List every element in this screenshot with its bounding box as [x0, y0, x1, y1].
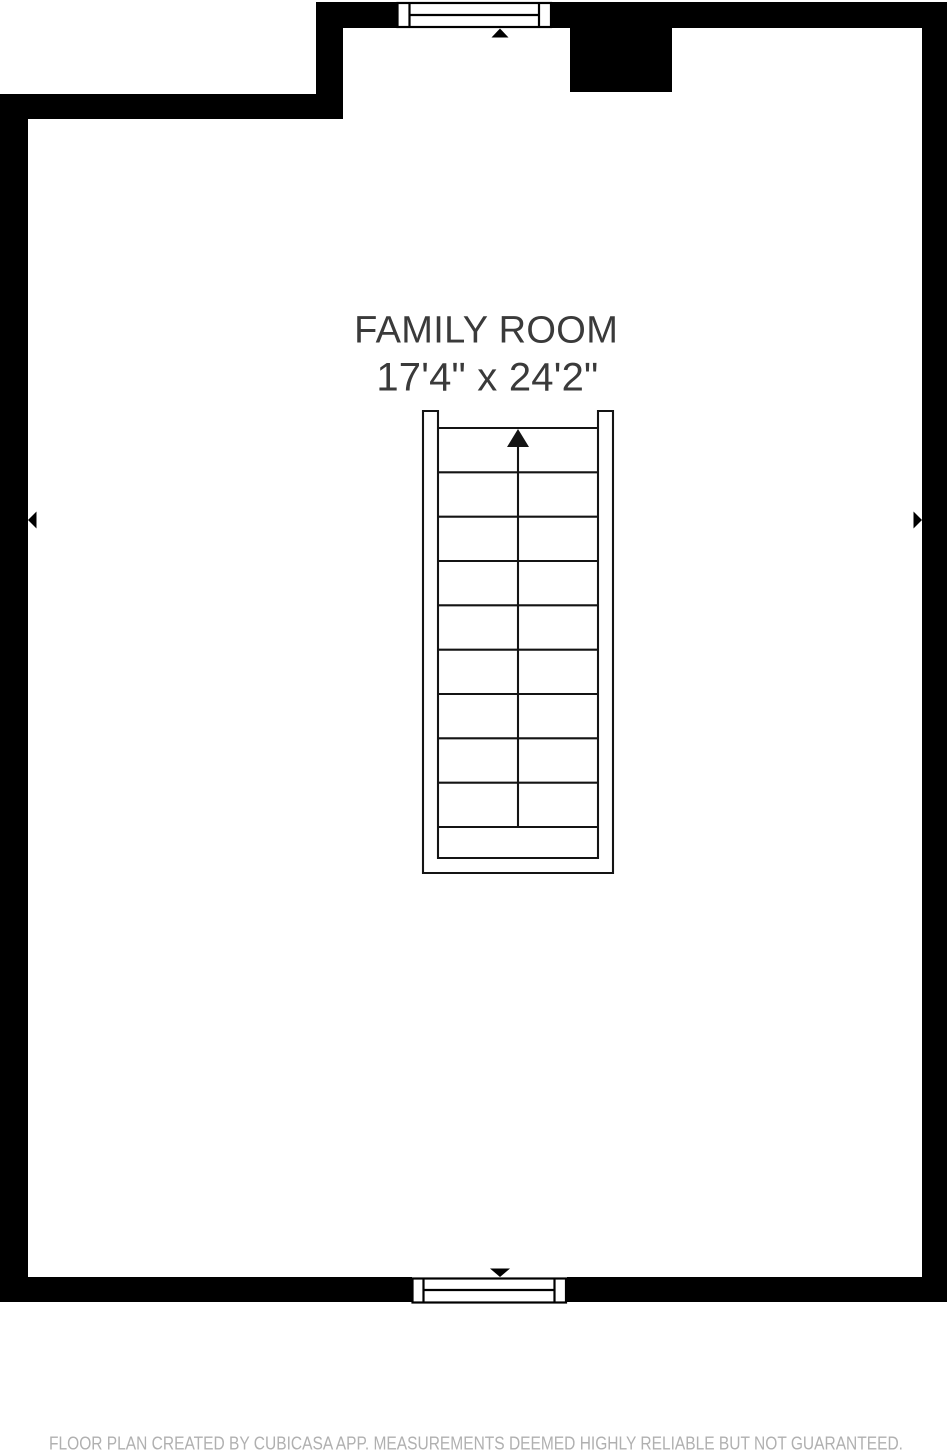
svg-text:17'4" x 24'2": 17'4" x 24'2"	[376, 356, 598, 400]
svg-text:FAMILY ROOM: FAMILY ROOM	[354, 310, 618, 352]
svg-text:FLOOR PLAN CREATED BY CUBICASA: FLOOR PLAN CREATED BY CUBICASA APP. MEAS…	[49, 1434, 903, 1454]
